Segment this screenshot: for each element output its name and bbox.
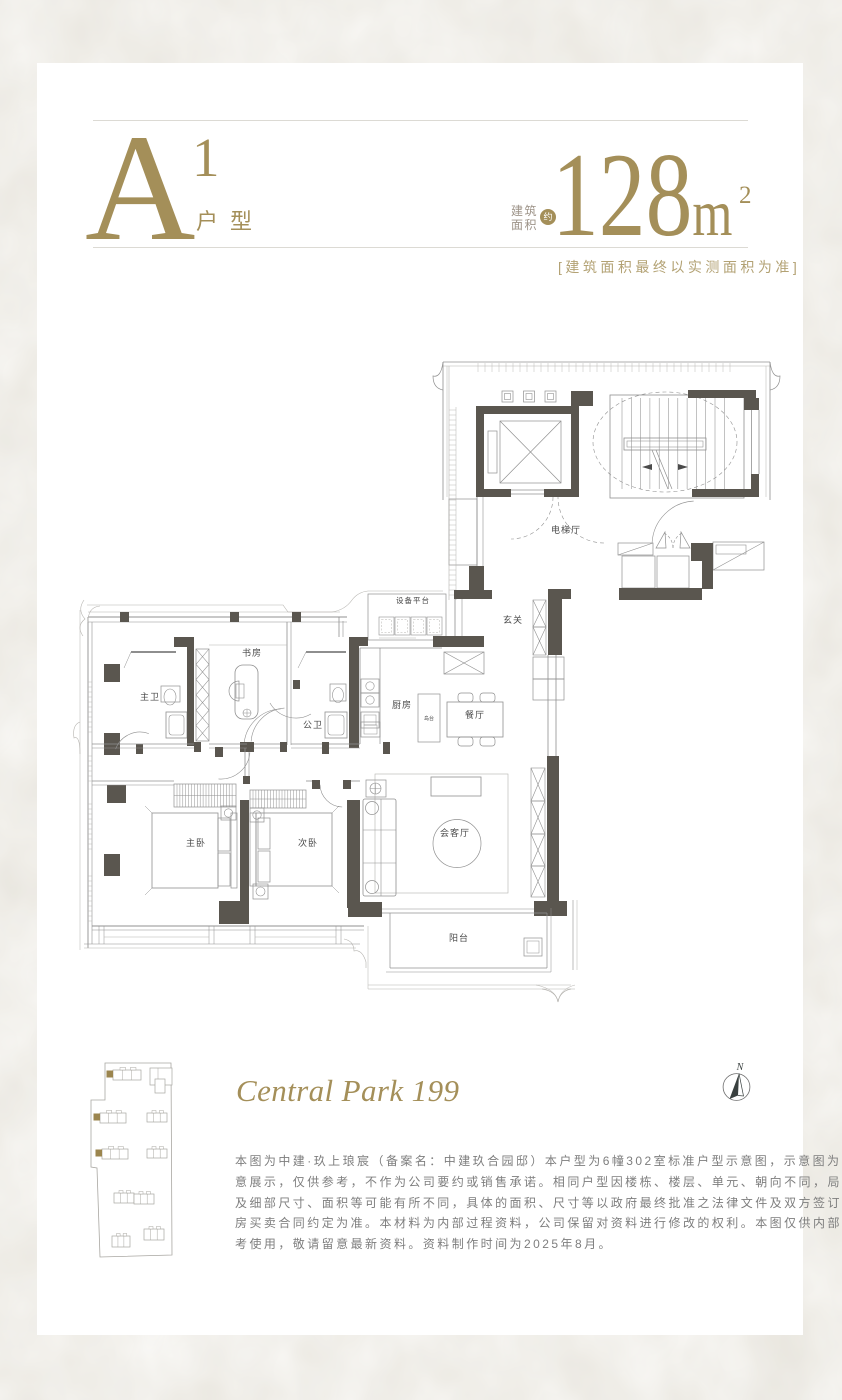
svg-text:岛台: 岛台 (424, 715, 434, 722)
svg-text:书房: 书房 (242, 647, 262, 658)
svg-text:次卧: 次卧 (298, 837, 318, 848)
svg-text:主卫: 主卫 (140, 691, 160, 702)
svg-text:厨房: 厨房 (392, 699, 412, 710)
svg-text:餐厅: 餐厅 (465, 709, 485, 720)
svg-text:N: N (736, 1062, 745, 1073)
svg-text:公卫: 公卫 (303, 720, 323, 730)
svg-text:玄关: 玄关 (503, 614, 523, 625)
svg-text:电梯厅: 电梯厅 (551, 524, 581, 535)
svg-text:设备平台: 设备平台 (396, 595, 430, 605)
svg-text:阳台: 阳台 (449, 932, 469, 943)
svg-text:主卧: 主卧 (186, 837, 206, 848)
svg-text:会客厅: 会客厅 (440, 827, 470, 838)
